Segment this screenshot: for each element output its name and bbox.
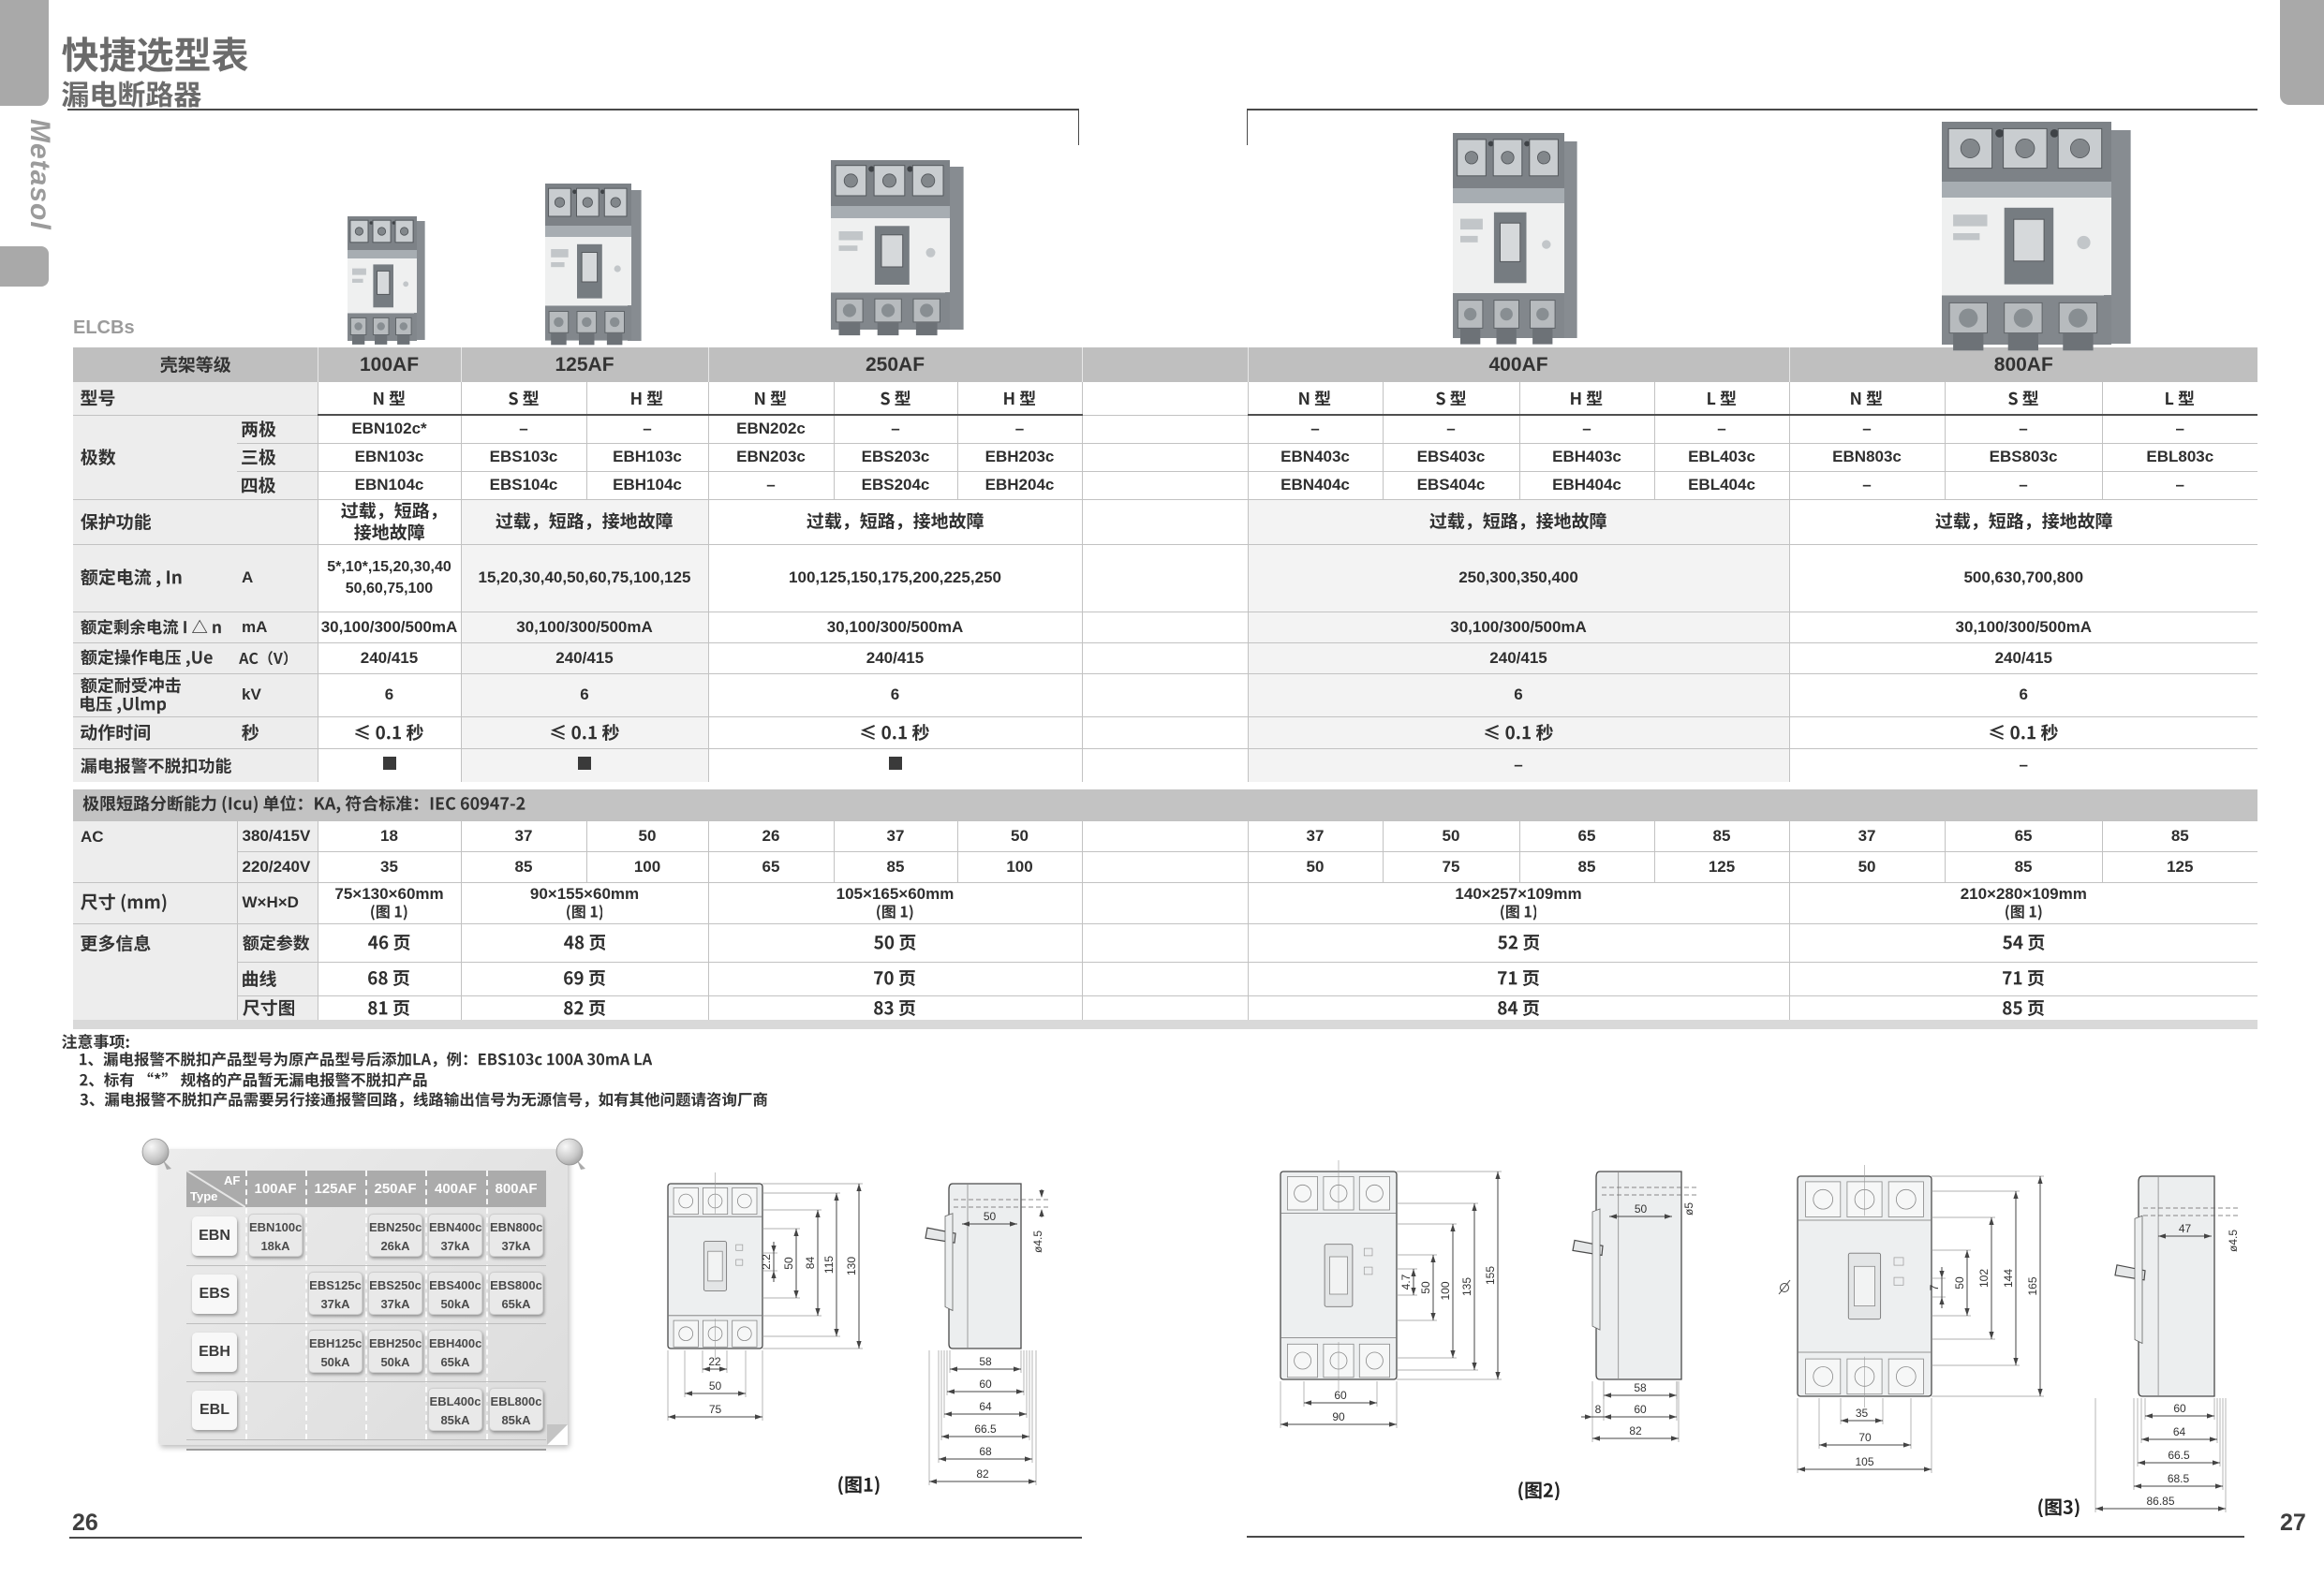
svg-text:64: 64 bbox=[979, 1400, 992, 1413]
svg-text:82: 82 bbox=[1629, 1424, 1642, 1437]
svg-text:60: 60 bbox=[979, 1378, 992, 1391]
svg-text:8: 8 bbox=[1595, 1403, 1602, 1416]
svg-text:64: 64 bbox=[2173, 1425, 2186, 1438]
svg-text:66.5: 66.5 bbox=[974, 1422, 997, 1436]
svg-text:60: 60 bbox=[1634, 1403, 1647, 1416]
svg-text:135: 135 bbox=[1460, 1277, 1473, 1296]
svg-text:60: 60 bbox=[1334, 1389, 1347, 1402]
svg-text:82: 82 bbox=[976, 1467, 989, 1481]
svg-text:47: 47 bbox=[2179, 1222, 2192, 1235]
svg-text:35: 35 bbox=[1856, 1407, 1869, 1420]
svg-text:50: 50 bbox=[1419, 1281, 1432, 1294]
svg-text:84: 84 bbox=[804, 1257, 817, 1270]
svg-text:50: 50 bbox=[1635, 1202, 1648, 1216]
svg-text:115: 115 bbox=[822, 1256, 836, 1274]
svg-text:165: 165 bbox=[2026, 1276, 2039, 1295]
svg-text:50: 50 bbox=[1953, 1276, 1966, 1290]
svg-text:60: 60 bbox=[2173, 1402, 2186, 1415]
svg-text:50: 50 bbox=[782, 1257, 795, 1270]
svg-text:155: 155 bbox=[1484, 1266, 1497, 1285]
svg-text:ø4.5: ø4.5 bbox=[2227, 1230, 2240, 1252]
svg-text:50: 50 bbox=[709, 1379, 722, 1393]
svg-text:4.7: 4.7 bbox=[1399, 1274, 1413, 1290]
svg-text:68: 68 bbox=[979, 1445, 992, 1458]
svg-text:50: 50 bbox=[984, 1210, 997, 1223]
svg-text:68.5: 68.5 bbox=[2168, 1472, 2190, 1485]
svg-text:58: 58 bbox=[1634, 1381, 1647, 1394]
svg-text:75: 75 bbox=[709, 1403, 722, 1416]
svg-text:102: 102 bbox=[1977, 1269, 1991, 1288]
svg-text:144: 144 bbox=[2002, 1269, 2015, 1288]
svg-text:ø4.5: ø4.5 bbox=[1031, 1231, 1044, 1253]
svg-text:105: 105 bbox=[1855, 1455, 1873, 1468]
svg-text:58: 58 bbox=[979, 1355, 992, 1368]
svg-text:ø5: ø5 bbox=[1682, 1202, 1695, 1216]
svg-text:70: 70 bbox=[1858, 1431, 1872, 1444]
svg-text:130: 130 bbox=[845, 1257, 858, 1275]
svg-text:66.5: 66.5 bbox=[2168, 1449, 2190, 1462]
svg-text:86.85: 86.85 bbox=[2146, 1495, 2174, 1508]
svg-text:2.2: 2.2 bbox=[760, 1254, 773, 1270]
svg-text:7: 7 bbox=[1928, 1284, 1941, 1290]
svg-text:100: 100 bbox=[1439, 1281, 1452, 1300]
svg-text:22: 22 bbox=[708, 1355, 721, 1368]
svg-text:90: 90 bbox=[1332, 1410, 1345, 1423]
